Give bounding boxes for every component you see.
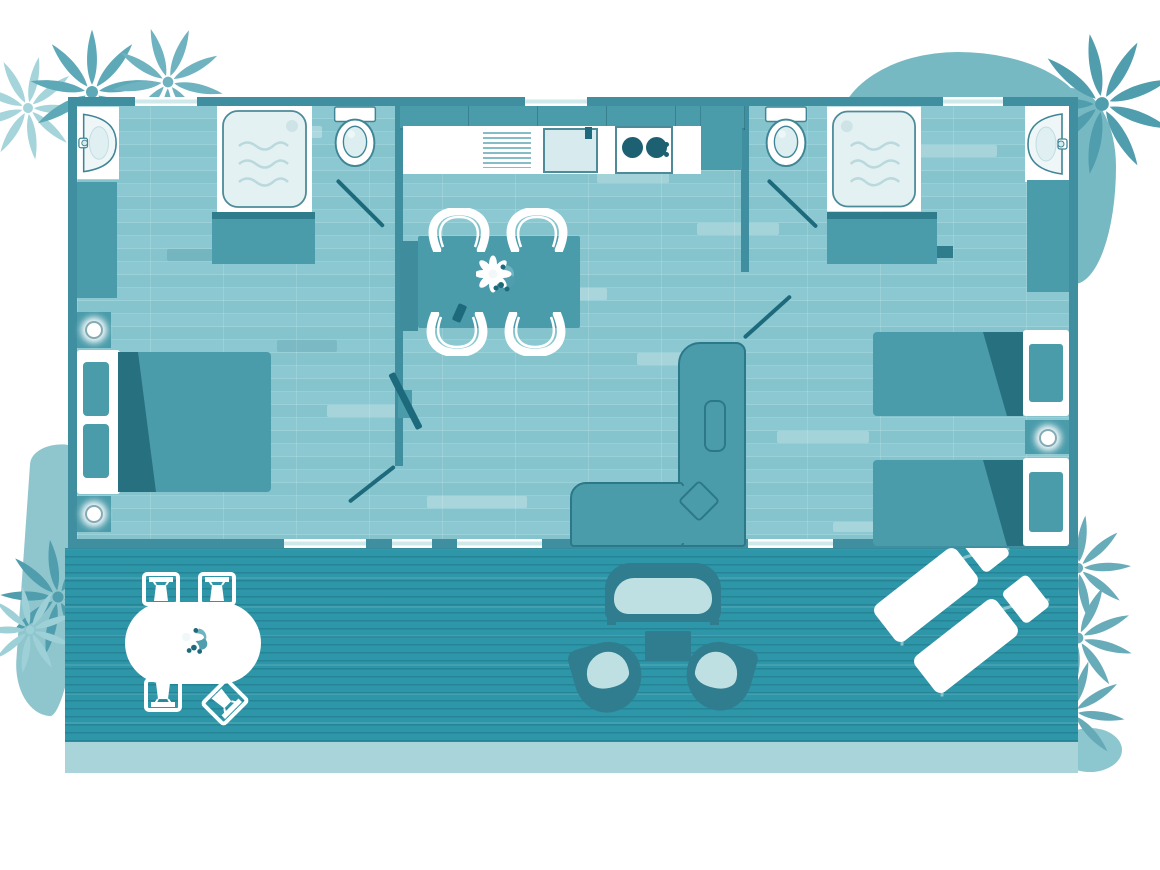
shower-icon xyxy=(217,106,312,212)
sofa-horizontal-section xyxy=(570,482,684,547)
hob-knob-icon xyxy=(664,152,669,157)
bedside-lamp-icon xyxy=(85,505,103,523)
pillow xyxy=(1029,344,1063,402)
dining-bench xyxy=(400,241,418,331)
bed-fold-icon xyxy=(873,460,1023,546)
draining-board xyxy=(483,132,531,168)
outdoor-bench-cushion xyxy=(614,578,712,614)
bench-leg xyxy=(710,616,719,625)
wardrobe-top-edge xyxy=(212,212,315,219)
floor-plank xyxy=(277,340,337,352)
toilet-icon xyxy=(762,106,810,168)
bedside-lamp-icon xyxy=(1039,429,1057,447)
shower-icon xyxy=(827,106,921,212)
outdoor-coffee-table xyxy=(645,631,691,661)
hob-knob-icon xyxy=(664,142,669,147)
bench-leg xyxy=(607,616,616,625)
window xyxy=(943,97,1003,106)
pillow xyxy=(83,362,109,416)
pillow xyxy=(83,424,109,478)
wardrobe xyxy=(212,219,315,264)
tv-icon xyxy=(388,372,422,430)
dining-chair-icon xyxy=(504,312,566,356)
partition-wall-right xyxy=(741,106,749,272)
sliding-glass-door xyxy=(457,539,542,548)
bathroom-cabinet xyxy=(1027,180,1069,292)
dining-chair-icon xyxy=(428,208,490,252)
wardrobe-step xyxy=(937,246,953,258)
dining-chair-icon xyxy=(506,208,568,252)
bathroom-cabinet xyxy=(77,182,117,298)
wardrobe-top-edge xyxy=(827,212,937,219)
floor-plank xyxy=(917,145,997,157)
flower-centerpiece-icon xyxy=(476,254,522,300)
washbasin-icon xyxy=(1025,106,1069,182)
window xyxy=(525,97,587,106)
floor-plank xyxy=(777,431,869,443)
floor-plank xyxy=(427,496,527,508)
door-left-bedroom xyxy=(348,465,396,504)
door-right-bedroom xyxy=(743,294,792,339)
sliding-glass-door xyxy=(284,539,366,548)
bed-fold-icon xyxy=(118,352,271,492)
flower-centerpiece-icon xyxy=(170,618,214,662)
toilet-icon xyxy=(331,106,379,168)
washbasin-icon xyxy=(77,106,119,180)
terrace-deck-edge xyxy=(65,742,1078,773)
bed-fold-icon xyxy=(873,332,1023,416)
wardrobe xyxy=(827,219,937,264)
door-left-bathroom xyxy=(336,179,385,228)
sliding-glass-door xyxy=(748,539,833,548)
door-right-bathroom xyxy=(767,179,819,229)
hob-burner-icon xyxy=(622,137,643,158)
bedside-lamp-icon xyxy=(85,321,103,339)
kitchen-faucet-icon xyxy=(585,127,592,139)
patio-chair-icon xyxy=(144,678,182,712)
floor-plank xyxy=(697,223,779,235)
floor-plan-scene xyxy=(0,0,1160,870)
sofa-armrest xyxy=(704,400,726,452)
tall-cabinet-fridge xyxy=(700,106,742,170)
sliding-glass-door xyxy=(392,539,432,548)
window xyxy=(135,97,197,106)
patio-chair-icon xyxy=(142,572,180,606)
patio-chair-icon xyxy=(198,572,236,606)
house-plan xyxy=(68,97,1078,548)
pillow xyxy=(1029,472,1063,532)
